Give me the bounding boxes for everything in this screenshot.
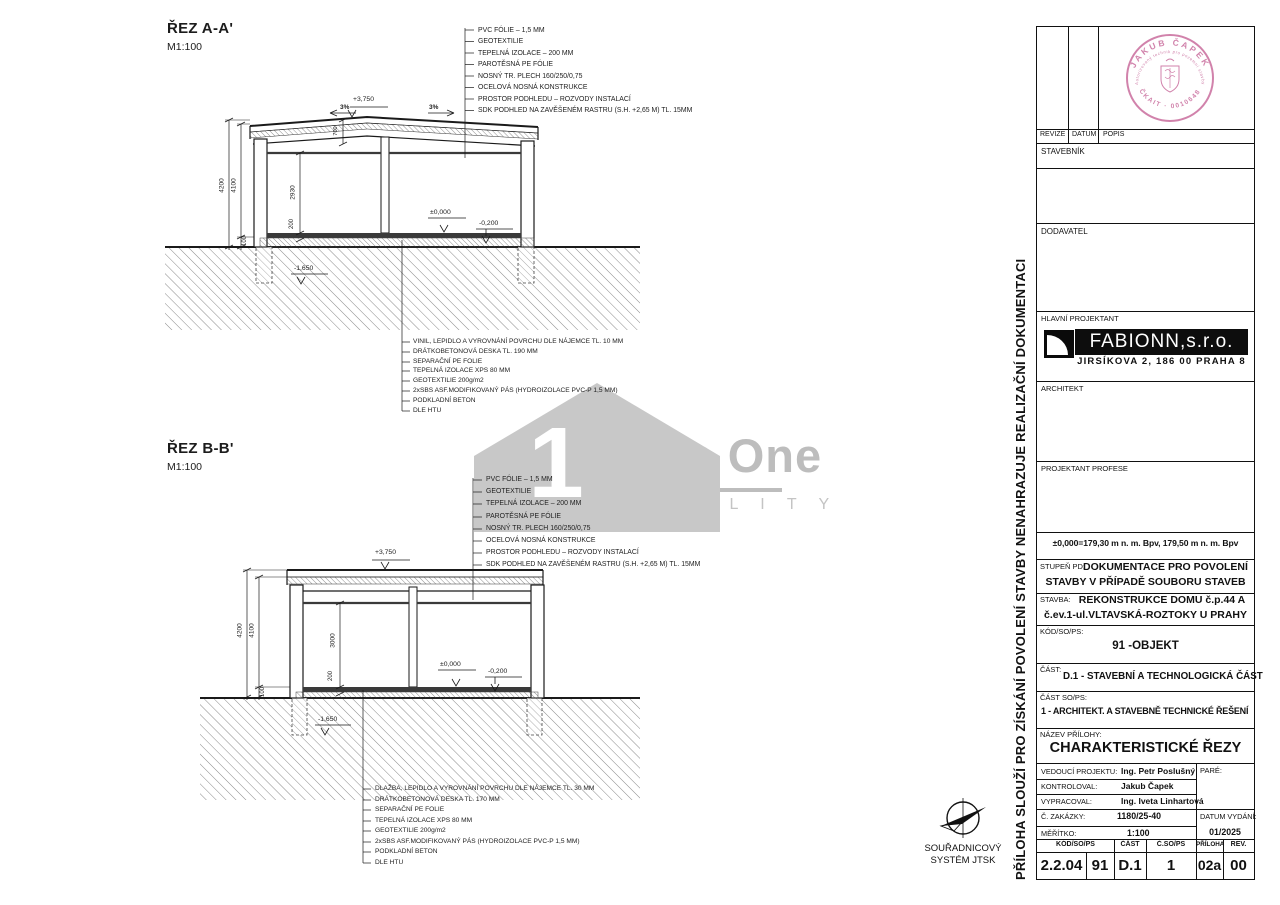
vypracoval-label: VYPRACOVAL: [1041,797,1092,806]
callout: PAROTĚSNÁ PE FÓLIE [486,511,700,523]
callout: GEOTEXTILIE [478,36,692,48]
section-b-title: ŘEZ B-B' [167,440,234,457]
dim-total-height: 4200 [219,166,226,206]
bottom-header-cast: ČÁST [1114,841,1146,848]
slope-right: 3% [429,104,438,111]
dim-room-height: 2930 [290,173,297,213]
bottom-value-priloha: 02a [1196,857,1223,873]
vedouci-label: VEDOUCÍ PROJEKTU: [1041,767,1117,776]
section-b-floor-callouts: DLAŽBA, LEPIDLO A VYROVNÁNÍ POVRCHU DLE … [375,784,594,868]
callout: NOSNÝ TR. PLECH 160/250/0,75 [478,71,692,83]
callout: SDK PODHLED NA ZAVĚŠENÉM RASTRU (S.H. +2… [486,559,700,571]
architekt-label: ARCHITEKT [1041,384,1084,393]
coordinate-system-label-1: SOUŘADNICOVÝ [918,843,1008,854]
side-note: PŘÍLOHA SLOUŽÍ PRO ZÍSKÁNÍ POVOLENÍ STAV… [1013,280,1028,880]
callout: TEPELNÁ IZOLACE XPS 80 MM [413,366,623,376]
kontroloval-label: KONTROLOVAL: [1041,782,1097,791]
callout: DLE HTU [413,406,623,416]
section-b-scale: M1:100 [167,461,202,473]
level-zero: ±0,000 [440,661,461,668]
callout: 2xSBS ASF.MODIFIKOVANÝ PÁS (HYDROIZOLACE… [413,386,623,396]
title-block: REVIZE DATUM POPIS STAVEBNÍK DODAVATEL H… [1036,26,1255,880]
level-foundation: -1,650 [318,716,337,723]
section-a-title: ŘEZ A-A' [167,20,233,37]
level-floor: -0,200 [479,220,498,227]
callout: NOSNÝ TR. PLECH 160/250/0,75 [486,523,700,535]
bottom-value-rev: 00 [1223,857,1254,874]
nazev-prilohy-value: CHARAKTERISTICKÉ ŘEZY [1037,740,1254,756]
stamp-crest [1161,59,1179,92]
dim-floor: 200 [289,212,295,236]
dim-room-height: 3000 [330,621,337,661]
meritko-label: MĚŘÍTKO: [1041,829,1076,838]
cast-so-ps-label: ČÁST SO/PS: [1040,693,1087,702]
callout: PROSTOR PODHLEDU – ROZVODY INSTALACÍ [486,547,700,559]
stavebnik-label: STAVEBNÍK [1041,147,1085,156]
cast-so-ps-value: 1 - ARCHITEKT. A STAVEBNĚ TECHNICKÉ ŘEŠE… [1041,706,1248,716]
dim-total-height: 4200 [237,611,244,651]
callout: GEOTEXTILIE 200g/m2 [413,376,623,386]
zakazka-label: Č. ZAKÁZKY: [1041,812,1085,821]
callout: DLAŽBA, LEPIDLO A VYROVNÁNÍ POVRCHU DLE … [375,784,594,795]
callout: OCELOVÁ NOSNÁ KONSTRUKCE [478,82,692,94]
stavba-value-1: REKONSTRUKCE DOMU č.p.44 A [1077,594,1247,606]
dim-plinth: 100 [260,680,266,704]
bottom-header-rev: REV. [1223,841,1254,848]
vedouci-value: Ing. Petr Poslušný [1121,766,1195,776]
pare-label: PARÉ: [1200,766,1222,775]
datum-vydani-label: DATUM VYDÁNÍ: [1200,812,1257,821]
fabionn-logo-icon [1044,330,1074,358]
dim-plinth: 100 [242,229,248,253]
dim-floor: 200 [328,664,334,688]
slope-left: 3% [340,104,349,111]
callout: GEOTEXTILIE [486,486,700,498]
bottom-header-kod: KÓD/SO/PS [1037,841,1114,848]
nazev-prilohy-label: NÁZEV PŘÍLOHY: [1040,730,1102,739]
callout: GEOTEXTILIE 200g/m2 [375,826,594,837]
section-a-roof-callouts: PVC FÓLIE – 1,5 MM GEOTEXTILIE TEPELNÁ I… [478,25,692,117]
callout: PAROTĚSNÁ PE FÓLIE [478,59,692,71]
datum-vydani-value: 01/2025 [1196,827,1254,837]
authorization-stamp: JAKUB ČAPEK Autorizovaný technik pro poz… [1120,30,1220,130]
stupen-pd-value-1: DOKUMENTACE PRO POVOLENÍ [1083,561,1248,573]
bottom-value-cast: D.1 [1114,857,1146,874]
projektant-profese-label: PROJEKTANT PROFESE [1041,464,1128,473]
stamp-number: ČKAIT · 0010648 [1137,87,1202,110]
callout: PROSTOR PODHLEDU – ROZVODY INSTALACÍ [478,94,692,106]
bottom-value-kod: 2.2.04 [1037,857,1086,874]
callout: PODKLADNÍ BETON [413,396,623,406]
rev-header-popis: POPIS [1103,131,1124,138]
stupen-pd-value-2: STAVBY V PŘÍPADĚ SOUBORU STAVEB [1037,576,1254,588]
level-foundation: -1,650 [294,265,313,272]
cast-label: ČÁST: [1040,665,1061,674]
rev-header-datum: DATUM [1072,131,1096,138]
bottom-header-priloha: PŘÍLOHA [1196,841,1223,848]
callout: PVC FÓLIE – 1,5 MM [486,474,700,486]
callout: DRÁTKOBETONOVÁ DESKA TL. 170 MM [375,795,594,806]
section-a-scale: M1:100 [167,41,202,53]
dodavatel-label: DODAVATEL [1041,227,1088,236]
bottom-header-csops: Č.SO/PS [1146,841,1196,848]
fabionn-logo-name: FABIONN,s.r.o. [1075,329,1248,355]
callout: SEPARAČNÍ PE FOLIE [413,357,623,367]
callout: 2xSBS ASF.MODIFIKOVANÝ PÁS (HYDROIZOLACE… [375,837,594,848]
vypracoval-value: Ing. Iveta Linhartová [1121,796,1204,806]
section-a-floor-callouts: VINIL, LEPIDLO A VYROVNÁNÍ POVRCHU DLE N… [413,337,623,415]
callout: TEPELNÁ IZOLACE XPS 80 MM [375,816,594,827]
zakazka-value: 1180/25-40 [1117,811,1161,821]
callout: TEPELNÁ IZOLACE – 200 MM [486,498,700,510]
coordinate-system-label-2: SYSTÉM JTSK [918,855,1008,866]
stupen-pd-label: STUPEŇ PD: [1040,562,1085,571]
callout: DRÁTKOBETONOVÁ DESKA TL. 190 MM [413,347,623,357]
elevation-note: ±0,000=179,30 m n. m. Bpv, 179,50 m n. m… [1037,538,1254,548]
callout: DLE HTU [375,858,594,869]
section-linework: 1 [0,0,1010,905]
kod-so-ps-value: 91 -OBJEKT [1037,640,1254,652]
callout: OCELOVÁ NOSNÁ KONSTRUKCE [486,535,700,547]
north-arrow-icon [941,798,986,838]
meritko-value: 1:100 [1127,828,1150,838]
hlavni-projektant-label: HLAVNÍ PROJEKTANT [1041,314,1119,323]
callout: PVC FÓLIE – 1,5 MM [478,25,692,37]
callout: SEPARAČNÍ PE FOLIE [375,805,594,816]
level-floor: -0,200 [488,668,507,675]
rev-header-revize: REVIZE [1040,131,1065,138]
section-b-roof-callouts: PVC FÓLIE – 1,5 MM GEOTEXTILIE TEPELNÁ I… [486,474,700,572]
callout: VINIL, LEPIDLO A VYROVNÁNÍ POVRCHU DLE N… [413,337,623,347]
cast-value: D.1 - STAVEBNÍ A TECHNOLOGICKÁ ČÁST [1063,671,1263,682]
bottom-value-91: 91 [1086,857,1114,874]
stavba-label: STAVBA: [1040,595,1071,604]
kod-so-ps-label: KÓD/SO/PS: [1040,627,1083,636]
stavba-value-2: č.ev.1-ul.VLTAVSKÁ-ROZTOKY U PRAHY [1037,609,1254,621]
callout: SDK PODHLED NA ZAVĚŠENÉM RASTRU (S.H. +2… [478,105,692,117]
level-top: +3,750 [353,96,374,103]
kontroloval-value: Jakub Čapek [1121,781,1173,791]
drawing-sheet: Top One R E A L I T Y 1 [0,0,1280,905]
bottom-value-csops: 1 [1146,857,1196,874]
level-top: +3,750 [375,549,396,556]
dim-roof-build: 700 [333,119,339,143]
dim-inner-height: 4100 [231,166,238,206]
fabionn-logo-address: JIRSÍKOVA 2, 186 00 PRAHA 8 [1075,356,1248,367]
dim-inner-height: 4100 [249,611,256,651]
callout: PODKLADNÍ BETON [375,847,594,858]
callout: TEPELNÁ IZOLACE – 200 MM [478,48,692,60]
level-zero: ±0,000 [430,209,451,216]
